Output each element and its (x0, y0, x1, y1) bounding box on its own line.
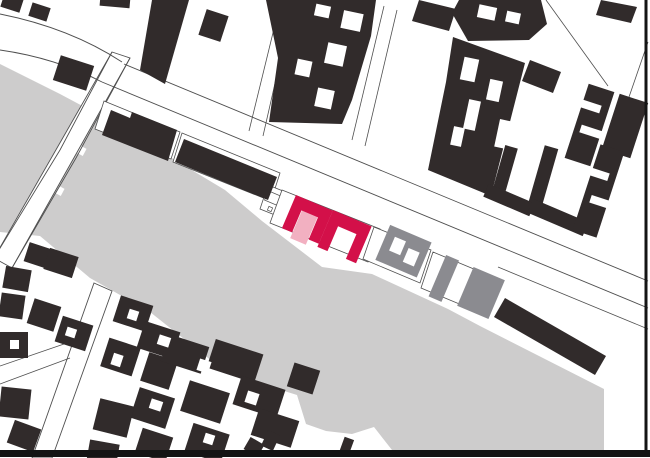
road-edge (0, 14, 122, 62)
building-bar (528, 145, 559, 208)
building (53, 55, 94, 91)
building (100, 0, 131, 8)
old-town-building (0, 387, 31, 420)
old-town-building (27, 298, 62, 331)
old-town-building (93, 398, 135, 438)
building-block (412, 0, 456, 31)
site-plan-figure (0, 0, 650, 458)
frame-border-right (645, 0, 648, 452)
building-block (522, 60, 561, 93)
building-block (596, 0, 637, 23)
old-town-building (0, 292, 26, 319)
building (0, 0, 23, 13)
frame-border-bottom (0, 450, 650, 457)
building-block (452, 0, 547, 41)
courtyard-gap (10, 340, 19, 349)
building (28, 2, 50, 21)
old-town-building (2, 266, 31, 292)
building-bar (483, 184, 534, 216)
site-plan-canvas (0, 0, 650, 458)
old-town-building (180, 380, 230, 423)
building (198, 9, 228, 42)
building-slab (140, 0, 189, 84)
